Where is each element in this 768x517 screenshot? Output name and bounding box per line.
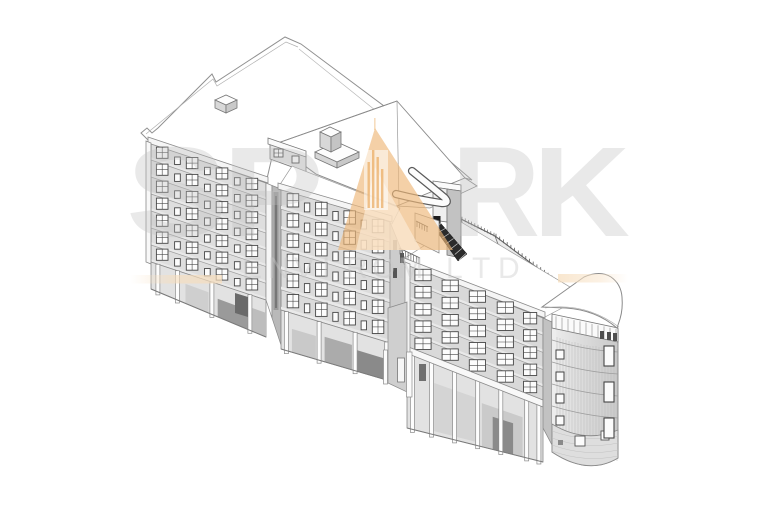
svg-text:N: N [268,252,290,285]
svg-text:L: L [446,252,463,285]
svg-text:O: O [372,252,395,285]
svg-text:D: D [498,252,520,285]
svg-text:I: I [322,252,330,285]
svg-text:R: R [452,121,540,264]
svg-text:M: M [398,252,423,285]
svg-text:S: S [126,121,227,264]
svg-text:P: P [222,121,324,264]
svg-text:V: V [294,252,314,285]
svg-text:E: E [242,252,262,285]
svg-text:K: K [533,121,630,264]
svg-text:T: T [472,252,490,285]
svg-text:R: R [346,252,368,285]
